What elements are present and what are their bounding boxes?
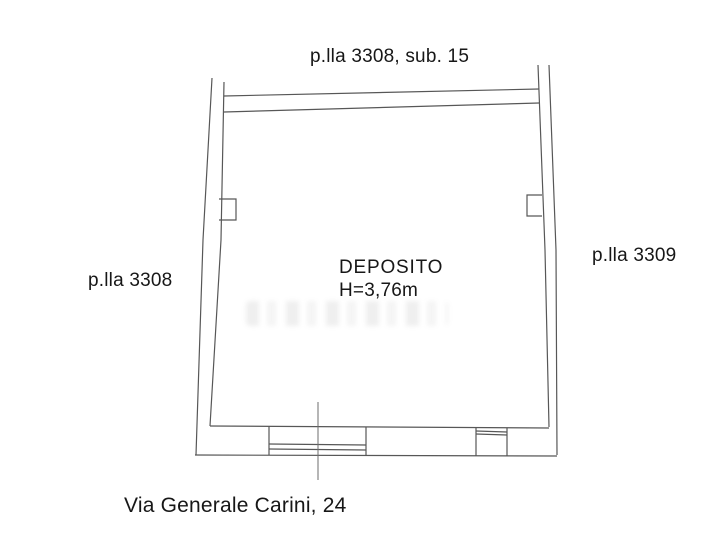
street-address-label: Via Generale Carini, 24 [124, 494, 347, 518]
left-wall [196, 78, 224, 455]
room-name-label: DEPOSITO [339, 257, 443, 279]
parcel-label-left: p.lla 3308 [88, 270, 172, 292]
right-pilaster [527, 195, 542, 216]
window-opening [476, 427, 507, 456]
parcel-label-right: p.lla 3309 [592, 245, 676, 267]
watermark [246, 301, 448, 326]
top-wall [224, 89, 539, 112]
right-wall [538, 65, 557, 455]
floorplan-page: p.lla 3308, sub. 15 p.lla 3308 p.lla 330… [0, 0, 708, 551]
room-height-label: H=3,76m [339, 280, 418, 302]
parcel-label-top: p.lla 3308, sub. 15 [310, 46, 469, 68]
bottom-wall [195, 426, 557, 456]
